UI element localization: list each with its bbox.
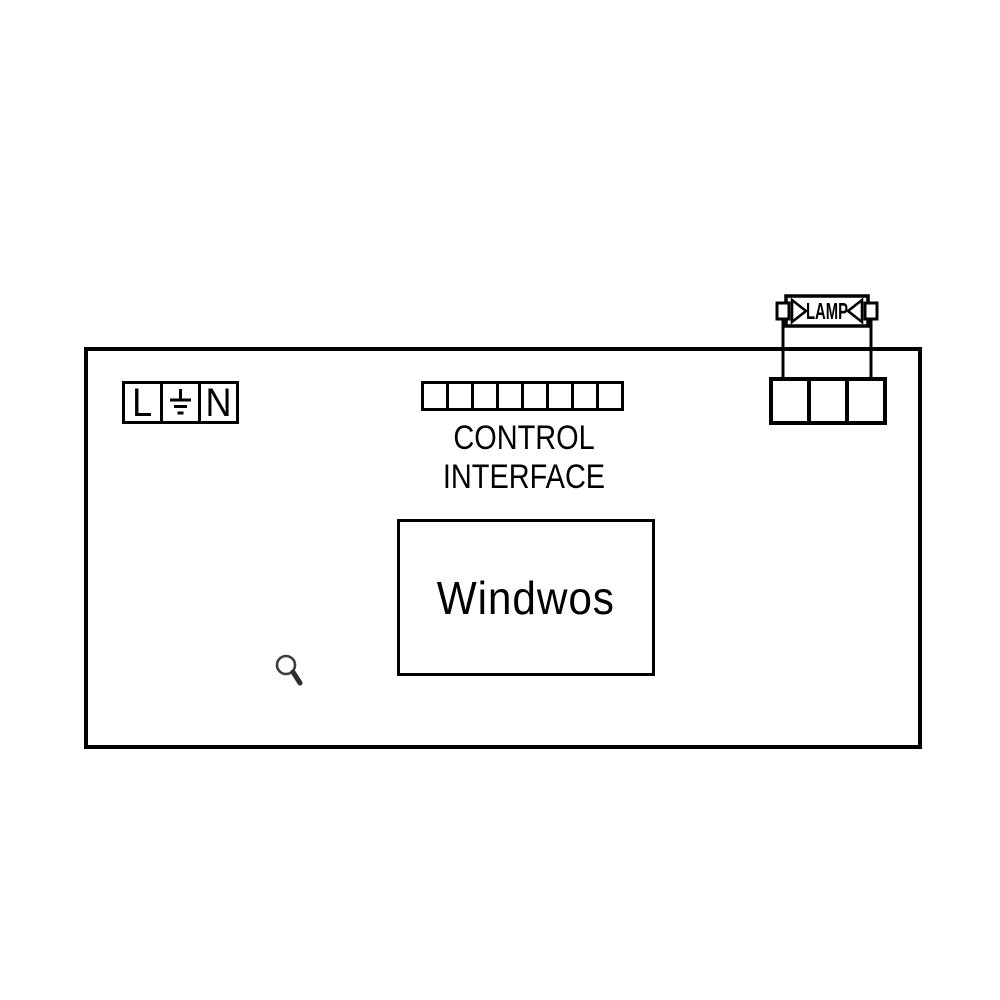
- wiring-diagram-canvas: LAMP L N: [0, 0, 1000, 1000]
- control-pin-cell: [571, 381, 599, 411]
- lamp-symbol: LAMP: [766, 292, 896, 387]
- terminal-cell-earth: [160, 381, 201, 424]
- module-label: Windwos: [437, 571, 615, 625]
- control-pin-cell: [521, 381, 549, 411]
- terminal-cell-neutral: N: [198, 381, 239, 424]
- control-caption-line1: CONTROL: [417, 419, 631, 458]
- lamp-pin-left: [777, 303, 789, 319]
- control-caption-line2: INTERFACE: [417, 458, 631, 497]
- control-interface-caption: CONTROL INTERFACE: [398, 419, 650, 497]
- lamp-terminal-cell: [807, 377, 849, 425]
- control-pin-cell: [546, 381, 574, 411]
- lamp-pin-right: [865, 303, 877, 319]
- control-pin-cell: [446, 381, 474, 411]
- lamp-terminal-cell: [769, 377, 811, 425]
- lamp-terminal-cell: [845, 377, 887, 425]
- control-pin-cell: [596, 381, 624, 411]
- earth-ground-icon: [163, 384, 198, 421]
- search-icon: [270, 650, 310, 690]
- lamp-terminal-block: [769, 377, 887, 425]
- terminal-cell-live: L: [122, 381, 163, 424]
- power-terminal-block: L N: [122, 381, 239, 424]
- module-box: Windwos: [397, 519, 655, 676]
- lamp-label: LAMP: [806, 298, 848, 324]
- neutral-terminal-label: N: [205, 383, 231, 423]
- control-pin-cell: [471, 381, 499, 411]
- control-interface-connector: [421, 381, 624, 411]
- control-pin-cell: [421, 381, 449, 411]
- control-pin-cell: [496, 381, 524, 411]
- live-terminal-label: L: [132, 383, 152, 423]
